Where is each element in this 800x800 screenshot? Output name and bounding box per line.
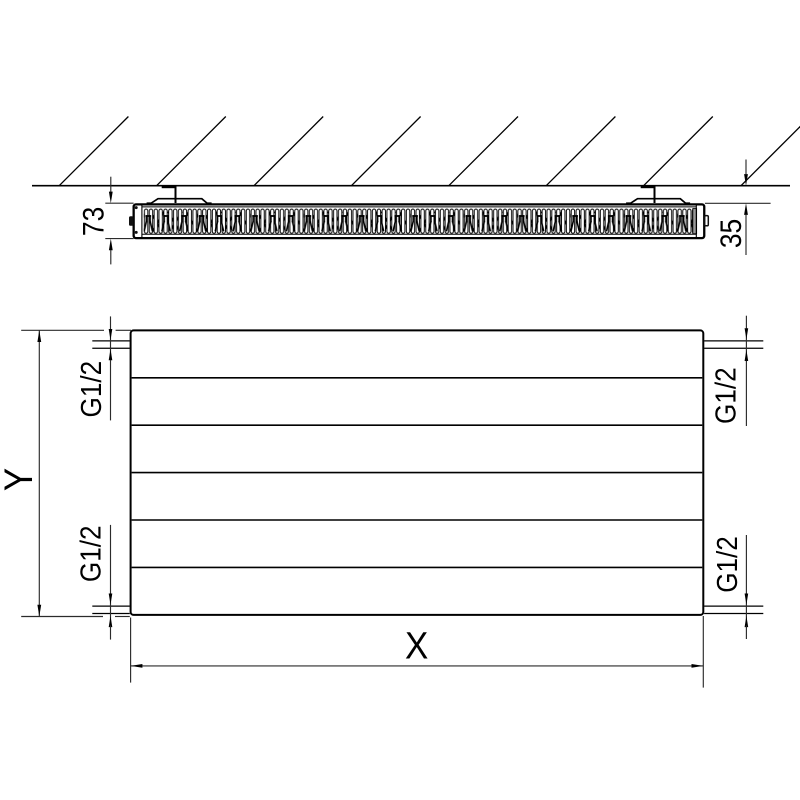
svg-text:G1/2: G1/2: [711, 536, 744, 593]
svg-text:G1/2: G1/2: [709, 367, 742, 424]
svg-text:35: 35: [713, 219, 747, 248]
svg-text:73: 73: [76, 207, 110, 236]
svg-text:G1/2: G1/2: [75, 361, 108, 418]
svg-text:Y: Y: [0, 468, 41, 491]
svg-text:X: X: [405, 624, 428, 667]
svg-text:G1/2: G1/2: [74, 526, 107, 583]
